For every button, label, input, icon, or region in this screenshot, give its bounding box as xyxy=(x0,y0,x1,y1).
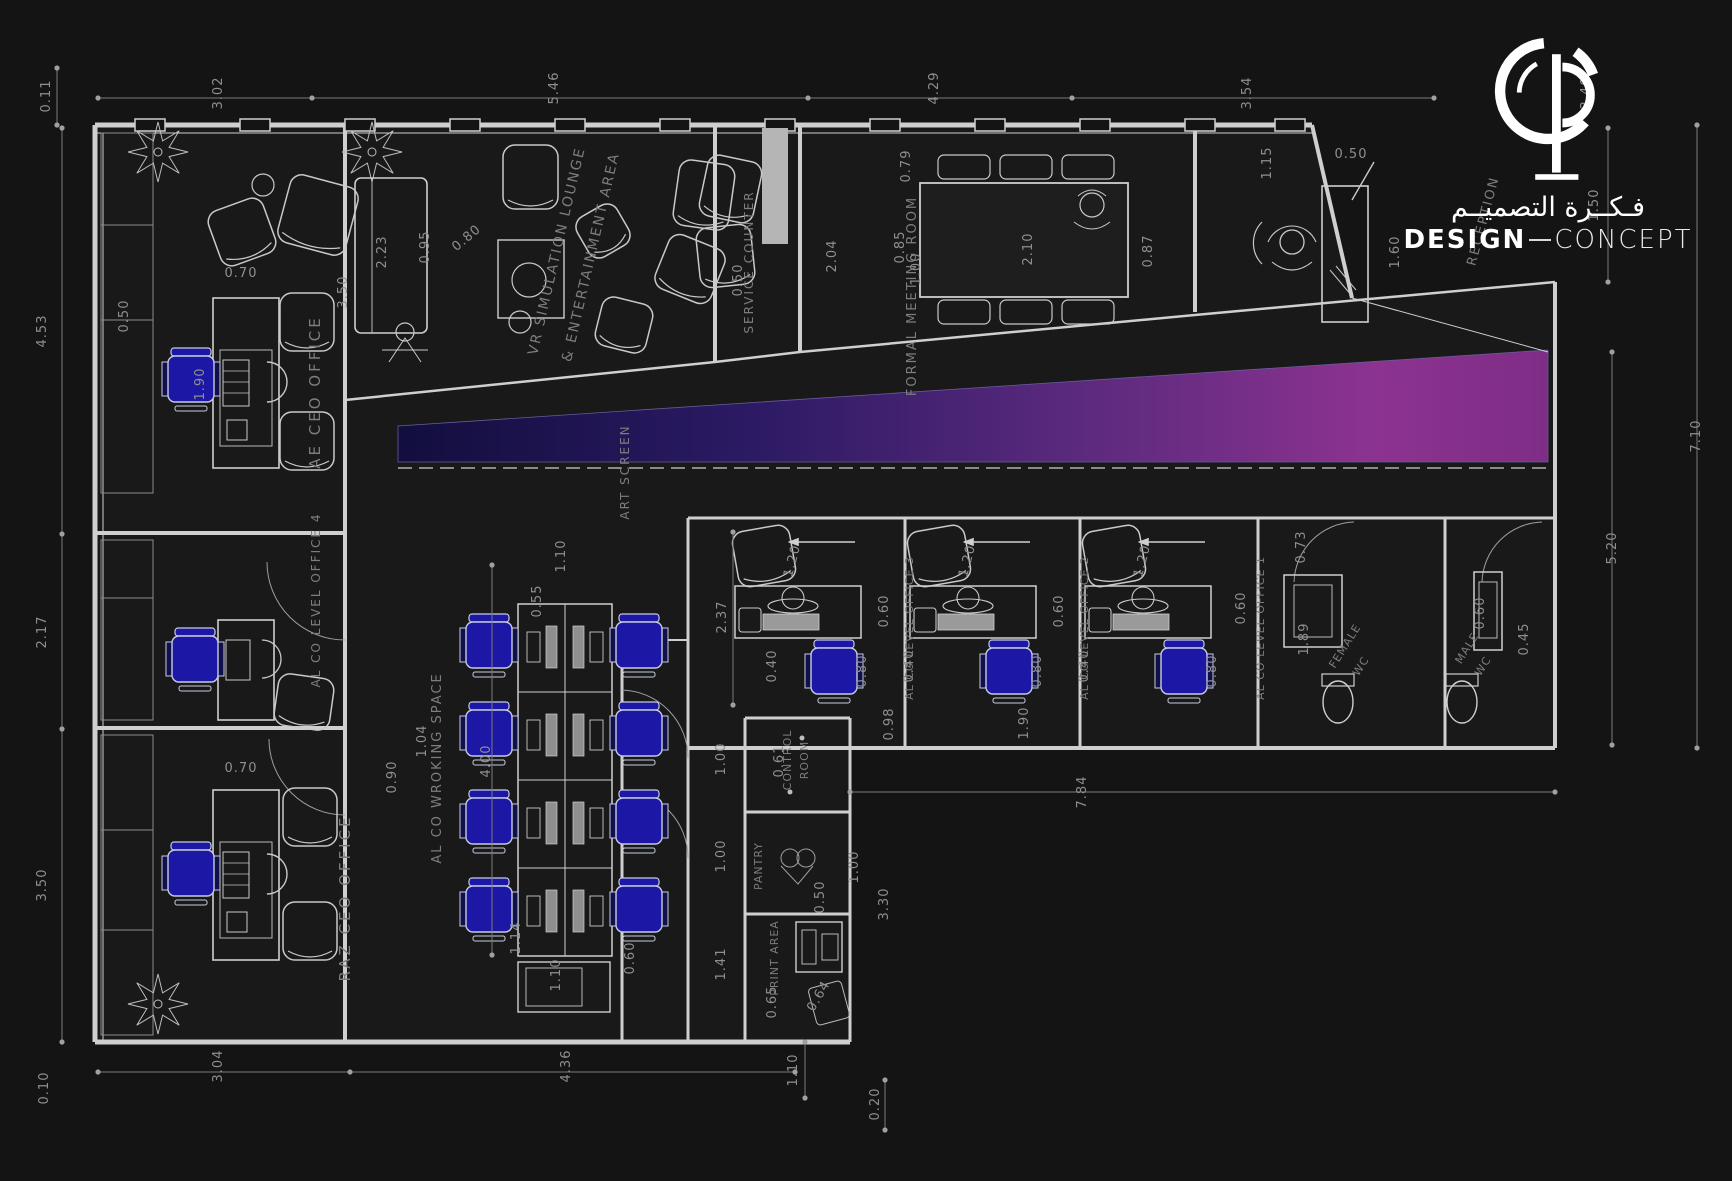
chair-arm xyxy=(460,804,466,838)
dimension-label: 0.80 xyxy=(855,655,870,688)
logo-english-text: DESIGN CONCEPT xyxy=(1403,225,1692,255)
window-mullion xyxy=(975,119,1005,131)
logo-d-bowl xyxy=(1562,67,1590,123)
dimension-label: 1.60 xyxy=(1388,236,1403,269)
chair-seat xyxy=(466,622,512,668)
chair-seat xyxy=(616,798,662,844)
dimension-label: 0.80 xyxy=(1205,655,1220,688)
dimension-label: 3.30 xyxy=(877,888,892,921)
dimension-label: 3.54 xyxy=(1240,77,1255,110)
room-label-working-space: AL CO WROKING SPACE xyxy=(430,672,445,863)
dimension-label: 2.10 xyxy=(1021,233,1036,266)
chair-arm xyxy=(610,804,616,838)
room-label-ae-ceo-office: AE CEO OFFICE xyxy=(306,315,324,468)
dimension-tick xyxy=(59,1039,64,1044)
window-mullion xyxy=(450,119,480,131)
chair-back xyxy=(171,842,211,850)
dimension-label: 0.60 xyxy=(1473,597,1488,630)
chair-arm xyxy=(805,654,811,688)
chair-arm xyxy=(214,856,220,890)
dimension-label: 2.17 xyxy=(35,616,50,649)
dimension-label: 0.87 xyxy=(1141,235,1156,268)
chair-back xyxy=(175,628,215,636)
dimension-label: 4.29 xyxy=(927,72,942,105)
dimension-tick xyxy=(95,1069,100,1074)
chair-back xyxy=(1164,640,1204,648)
dimension-tick xyxy=(489,562,494,567)
logo-arabic-text: فـكــرة التصميــم xyxy=(1451,192,1645,223)
dimension-tick xyxy=(347,1069,352,1074)
dimension-tick xyxy=(309,95,314,100)
service-panel xyxy=(762,128,788,244)
dimension-label: 2.23 xyxy=(375,236,390,269)
chair-arm xyxy=(460,628,466,662)
dimension-label: 1.10 xyxy=(554,540,569,573)
chair-arm xyxy=(610,628,616,662)
room-label-office-3: AL CO LEVEL OFFICE 3 xyxy=(903,556,916,700)
chair-back xyxy=(619,702,659,710)
dimension-label: 1.00 xyxy=(714,840,729,873)
dimension-label: 4.53 xyxy=(35,315,50,348)
dimension-tick xyxy=(1605,279,1610,284)
chair-seat xyxy=(168,850,214,896)
dimension-tick xyxy=(730,529,735,534)
chair-arm xyxy=(512,804,518,838)
dimension-label: 0.50 xyxy=(1335,147,1368,162)
dimension-label: 0.80 xyxy=(1030,655,1045,688)
dimension-label: 4.00 xyxy=(479,745,494,778)
dimension-label: 0.60 xyxy=(877,595,892,628)
dimension-tick xyxy=(802,1039,807,1044)
window-mullion xyxy=(240,119,270,131)
ws-monitor xyxy=(573,890,584,932)
dimension-label: 2.37 xyxy=(715,601,730,634)
dimension-label: 1.10 xyxy=(786,1054,801,1087)
dimension-label: 1.00 xyxy=(714,743,729,776)
dimension-label: 0.55 xyxy=(530,585,545,618)
dimension-label: 4.36 xyxy=(559,1050,574,1083)
window-mullion xyxy=(555,119,585,131)
window-mullion xyxy=(1275,119,1305,131)
dimension-label: 0.70 xyxy=(225,266,258,281)
dimension-label: 0.60 xyxy=(1052,595,1067,628)
room-label-service-counter: SERVICE COUNTER xyxy=(742,190,756,333)
dimension-tick xyxy=(1609,349,1614,354)
dimension-tick xyxy=(59,531,64,536)
dimension-label: 0.60 xyxy=(623,942,638,975)
room-label-control-room-line2: ROOM xyxy=(798,741,811,779)
dimension-label: 0.50 xyxy=(117,300,132,333)
chair-back xyxy=(469,790,509,798)
dimension-label: 0.70 xyxy=(225,761,258,776)
dimension-label: 0.50 xyxy=(813,881,828,914)
chair-seat xyxy=(616,710,662,756)
dimension-tick xyxy=(847,789,852,794)
dimension-tick xyxy=(54,65,59,70)
chair-back xyxy=(619,878,659,886)
chair-back xyxy=(469,702,509,710)
chair-arm xyxy=(512,892,518,926)
chair-back xyxy=(989,640,1029,648)
floor-plan-canvas: 0.113.025.464.293.543.401.504.532.173.50… xyxy=(0,0,1732,1181)
room-label-formal-meeting-room: FORMAL MEETING ROOM xyxy=(905,196,920,396)
dimension-tick xyxy=(1694,745,1699,750)
chair-arm xyxy=(610,892,616,926)
dimension-tick xyxy=(805,95,810,100)
ws-monitor xyxy=(573,714,584,756)
logo-dash xyxy=(1529,239,1551,241)
dimension-tick xyxy=(882,1077,887,1082)
dimension-tick xyxy=(489,952,494,957)
dimension-label: 1.15 xyxy=(1260,147,1275,180)
window-mullion xyxy=(870,119,900,131)
chair-arm xyxy=(460,716,466,750)
window-mullion xyxy=(1185,119,1215,131)
dimension-tick xyxy=(1694,122,1699,127)
dimension-label: 1.89 xyxy=(1297,623,1312,656)
dimension-label: 0.45 xyxy=(1517,623,1532,656)
chair-arm xyxy=(162,362,168,396)
ws-monitor xyxy=(546,714,557,756)
dimension-label: 0.11 xyxy=(39,80,54,113)
dimension-tick xyxy=(730,702,735,707)
chair-seat xyxy=(811,648,857,694)
ws-monitor xyxy=(546,802,557,844)
dimension-tick xyxy=(59,125,64,130)
chair-seat xyxy=(986,648,1032,694)
chair-seat xyxy=(616,622,662,668)
dimension-label: 0.10 xyxy=(37,1072,52,1105)
room-label-art-screen: ART SCREEN xyxy=(618,424,632,519)
dimension-label: 1.04 xyxy=(415,725,430,758)
dimension-tick xyxy=(882,1127,887,1132)
chair-arm xyxy=(512,628,518,662)
dimension-label: 7.10 xyxy=(1689,420,1704,453)
chair-arm xyxy=(662,804,668,838)
keyboard xyxy=(938,614,994,630)
dimension-label: 5.46 xyxy=(547,72,562,105)
dimension-label: 1.90 xyxy=(1017,707,1032,740)
dimension-label: 0.60 xyxy=(1234,592,1249,625)
chair-arm xyxy=(610,716,616,750)
chair-arm xyxy=(512,716,518,750)
dimension-tick xyxy=(1069,95,1074,100)
reception-pen xyxy=(1352,162,1374,200)
logo-inner-arc xyxy=(1519,64,1537,93)
dimension-label: 5.20 xyxy=(1605,532,1620,565)
logo-base xyxy=(1535,174,1578,180)
chair-back xyxy=(469,614,509,622)
dimension-label: 3.50 xyxy=(35,869,50,902)
chair-back xyxy=(171,348,211,356)
window-mullion xyxy=(1080,119,1110,131)
ws-monitor xyxy=(573,802,584,844)
dimension-label: 0.79 xyxy=(899,150,914,183)
keyboard xyxy=(763,614,819,630)
dimension-label: 0.95 xyxy=(418,231,433,264)
dimension-tick xyxy=(54,122,59,127)
chair-back xyxy=(469,878,509,886)
ws-monitor xyxy=(573,626,584,668)
chair-arm xyxy=(214,362,220,396)
room-label-office-4: AL CO LEVEL OFFICE 4 xyxy=(309,512,323,687)
window-mullion xyxy=(660,119,690,131)
dimension-label: 0.98 xyxy=(882,708,897,741)
chair-arm xyxy=(662,892,668,926)
chair-seat xyxy=(172,636,218,682)
dimension-label: 1.10 xyxy=(549,959,564,992)
chair-back xyxy=(619,614,659,622)
dimension-tick xyxy=(95,95,100,100)
window-mullion xyxy=(135,119,165,131)
dimension-label: 0.40 xyxy=(765,650,780,683)
dimension-label: 0.20 xyxy=(868,1088,883,1121)
design-concept-logo: فـكــرة التصميــم DESIGN CONCEPT xyxy=(1430,28,1666,255)
chair-back xyxy=(814,640,854,648)
dimension-label: 1.14 xyxy=(509,922,524,955)
dimension-tick xyxy=(59,726,64,731)
chair-back xyxy=(619,790,659,798)
dimension-tick xyxy=(802,1095,807,1100)
chair-arm xyxy=(980,654,986,688)
chair-seat xyxy=(466,798,512,844)
dimension-label: 2.04 xyxy=(825,240,840,273)
chair-seat xyxy=(466,886,512,932)
dimension-label: 3.04 xyxy=(211,1050,226,1083)
dimension-tick xyxy=(1609,742,1614,747)
chair-arm xyxy=(662,716,668,750)
dimension-label: 7.84 xyxy=(1075,776,1090,809)
room-label-office-1: AL CO LEVEL OFFICE 1 xyxy=(1254,556,1267,700)
control-marker xyxy=(800,736,805,741)
chair-arm xyxy=(162,856,168,890)
dimension-label: 3.02 xyxy=(211,77,226,110)
dimension-tick xyxy=(1552,789,1557,794)
chair-arm xyxy=(218,642,224,676)
room-label-raz-ceo-office: RAZ CEO OFFICE xyxy=(336,814,354,981)
logo-text-design: DESIGN xyxy=(1403,225,1526,255)
room-label-office-2: AL CO LEVEL OFFICE 2 xyxy=(1078,556,1091,700)
chair-arm xyxy=(460,892,466,926)
room-label-control-room-line1: CONTROL xyxy=(781,730,794,791)
dimension-label: 1.41 xyxy=(714,948,729,981)
chair-arm xyxy=(662,628,668,662)
dimension-label: 1.90 xyxy=(193,368,208,401)
dimension-label: 0.73 xyxy=(1294,531,1309,564)
logo-stem xyxy=(1552,54,1561,172)
chair-arm xyxy=(166,642,172,676)
keyboard xyxy=(1113,614,1169,630)
chair-arm xyxy=(1155,654,1161,688)
dimension-label: 0.90 xyxy=(385,761,400,794)
logo-text-concept: CONCEPT xyxy=(1554,225,1692,255)
dimension-label: 1.00 xyxy=(847,851,862,884)
room-label-pantry: PANTRY xyxy=(752,842,765,890)
logo-mark-icon xyxy=(1484,28,1612,186)
ws-monitor xyxy=(546,626,557,668)
dimension-label: 3.50 xyxy=(336,276,351,309)
room-label-print-area: PRINT AREA xyxy=(768,920,781,996)
ws-monitor xyxy=(546,890,557,932)
chair-seat xyxy=(1161,648,1207,694)
chair-seat xyxy=(616,886,662,932)
